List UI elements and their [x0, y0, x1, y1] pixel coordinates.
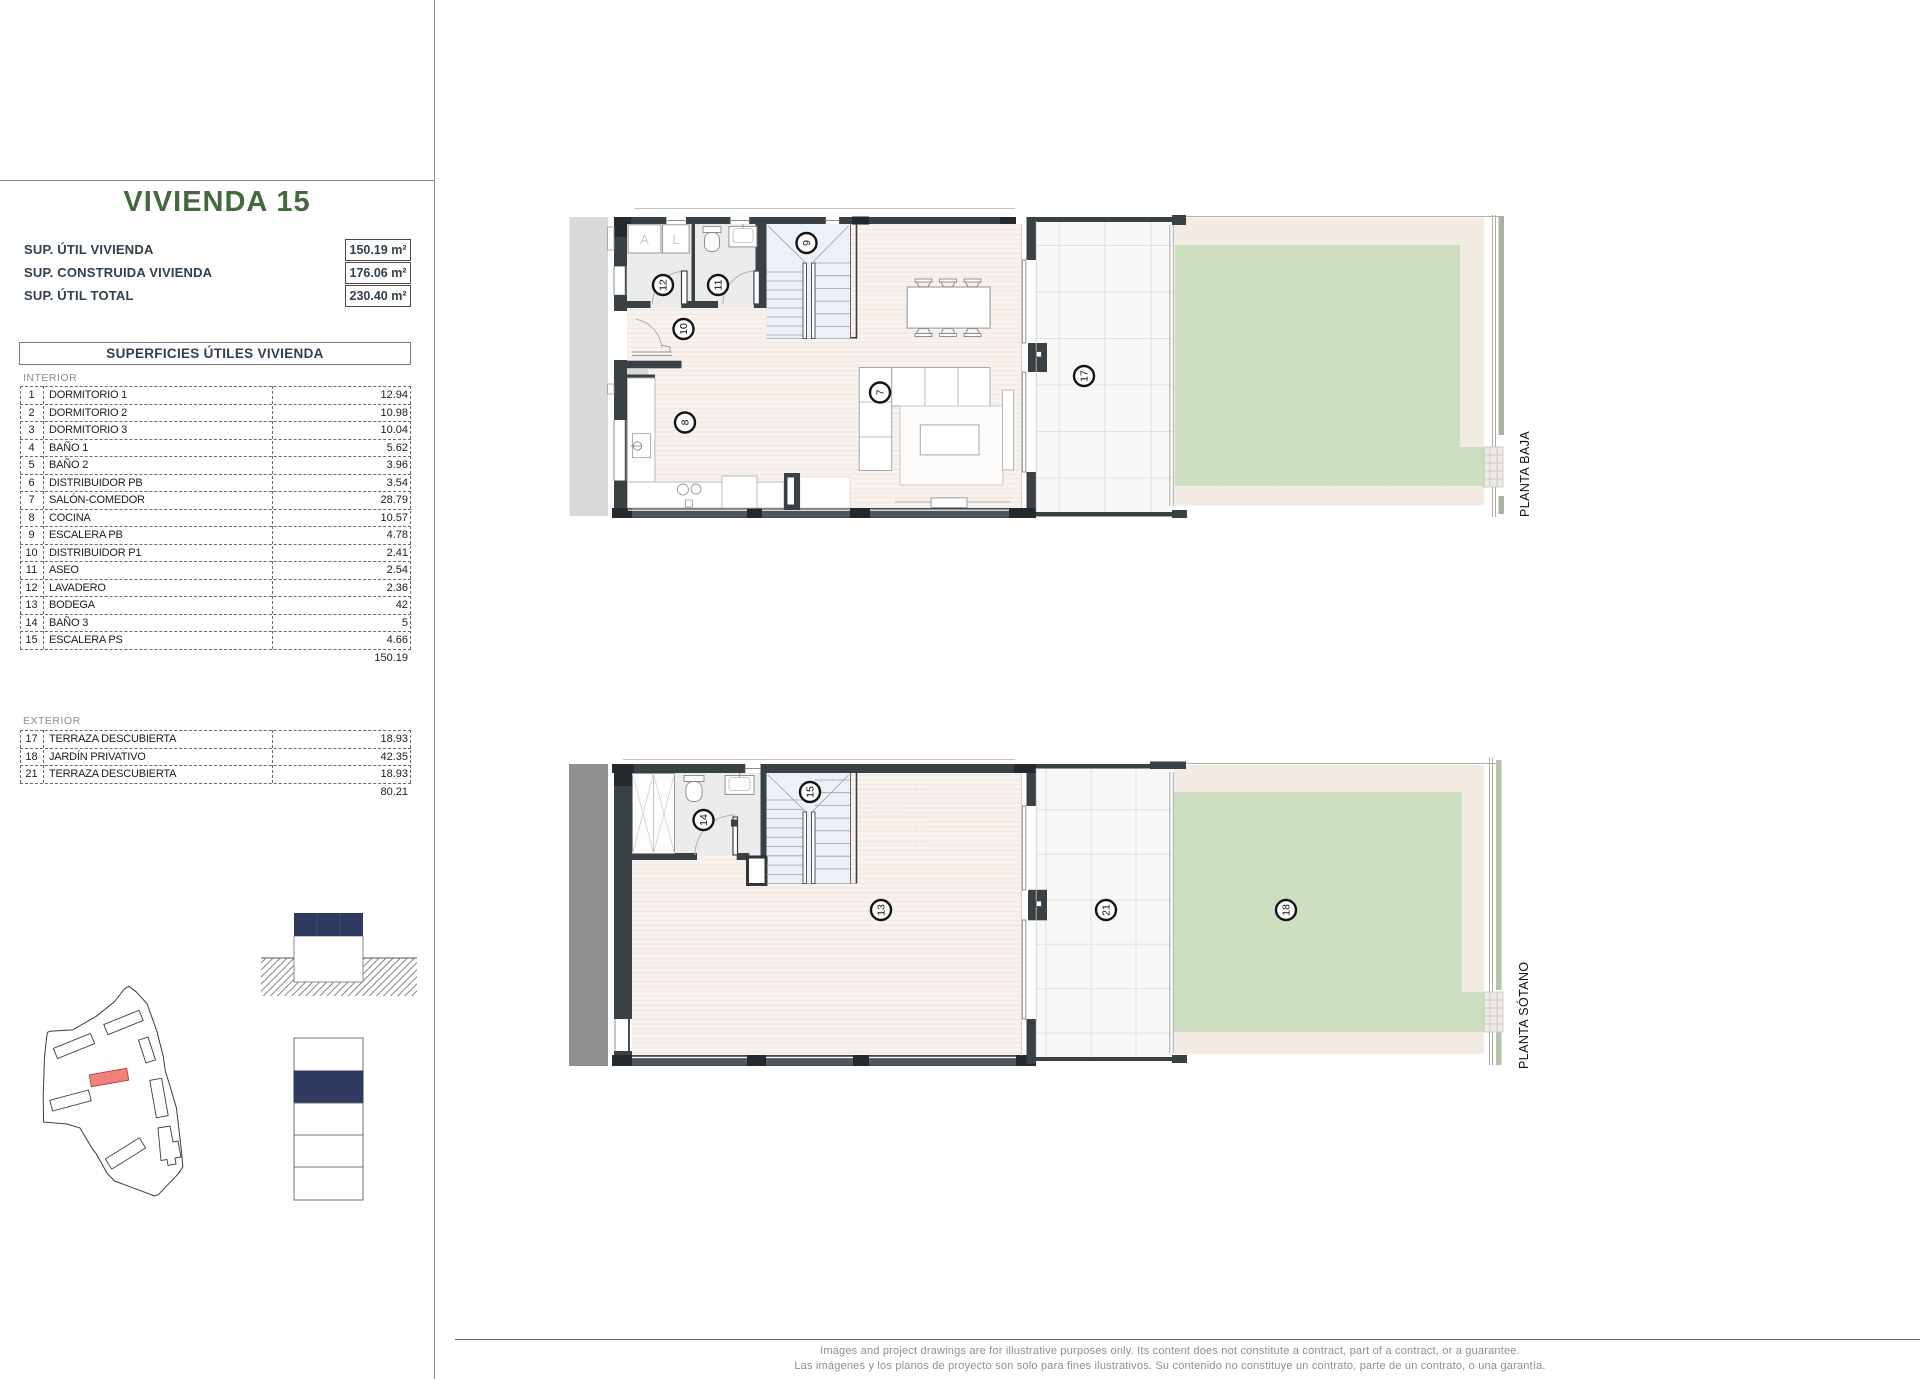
svg-text:12: 12 [658, 279, 670, 291]
svg-text:10: 10 [678, 323, 690, 335]
svg-text:PLANTA BAJA: PLANTA BAJA [1518, 431, 1532, 517]
svg-text:7: 7 [875, 389, 887, 395]
svg-text:18: 18 [1281, 904, 1293, 916]
svg-text:17: 17 [1079, 370, 1091, 382]
svg-text:14: 14 [698, 814, 710, 826]
svg-text:15: 15 [805, 786, 817, 798]
svg-text:11: 11 [713, 279, 725, 290]
svg-text:21: 21 [1101, 904, 1113, 916]
svg-text:L: L [672, 232, 679, 247]
svg-text:A: A [640, 232, 649, 247]
svg-text:PLANTA SÓTANO: PLANTA SÓTANO [1516, 961, 1531, 1069]
svg-text:9: 9 [801, 240, 813, 246]
svg-text:13: 13 [876, 904, 888, 916]
svg-text:8: 8 [680, 419, 692, 425]
